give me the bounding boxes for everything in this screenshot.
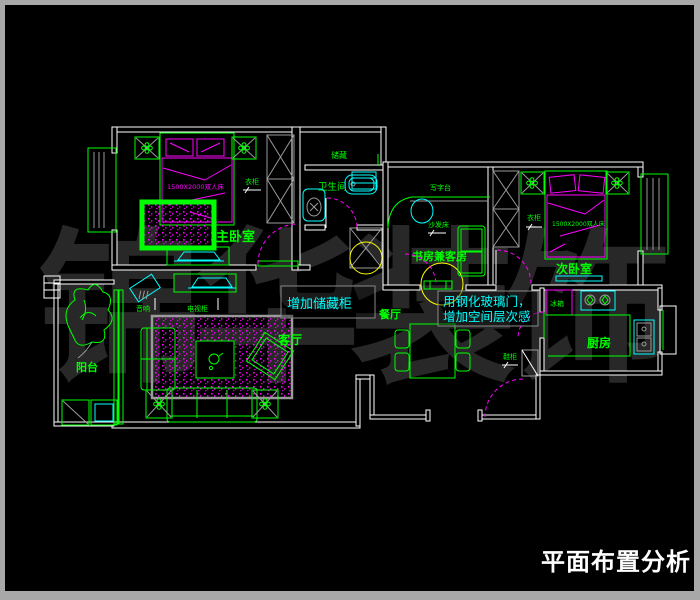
appliance-icon <box>91 400 117 425</box>
shoe-cabinet <box>522 350 538 376</box>
entry-door-arc <box>485 379 523 417</box>
toilet-icon <box>303 189 325 221</box>
frame-right <box>694 0 700 600</box>
tv-cabinet <box>174 274 236 292</box>
nightstand-second-left <box>521 172 544 194</box>
storage-cabinet-hatch <box>350 228 382 268</box>
bay-window-second <box>641 174 668 254</box>
coffee-table <box>196 341 234 378</box>
bay-window-master <box>88 148 116 232</box>
room-label-kitchen: 厨房 <box>587 335 611 350</box>
dimension-mark <box>526 224 542 230</box>
glass-door-note-box: 用钢化玻璃门， 增加空间层次感 <box>438 291 538 326</box>
storage-note-box: 增加储藏柜 <box>281 286 375 318</box>
frame-top <box>0 0 700 5</box>
label-fridge: 冰箱 <box>550 299 564 308</box>
label-tv-cabinet: 电视柜 <box>187 304 208 313</box>
room-label-study: 书房兼客房 <box>412 249 467 263</box>
speaker-icon <box>130 274 162 303</box>
dimension-mark <box>502 362 518 368</box>
washer-icon <box>62 400 89 425</box>
frame-left <box>0 0 5 600</box>
highlight-circle <box>350 242 382 274</box>
desk-chair-icon <box>411 199 433 223</box>
dimension-mark <box>243 187 261 193</box>
cad-canvas: 锦华装饰 <box>0 0 700 600</box>
stove-icon <box>581 291 615 310</box>
master-bed-size-label: 1500X2000双人床 <box>167 182 225 191</box>
service-balcony <box>660 306 676 354</box>
dining-table <box>395 324 470 378</box>
label-wardrobe-second: 衣柜 <box>527 213 541 222</box>
second-bed-size-label: 1500X2000双人床 <box>552 220 605 228</box>
label-sofa-bed: 沙发床 <box>428 220 449 229</box>
nightstand-second-right <box>606 172 629 194</box>
window-strip <box>556 276 602 281</box>
second-bedroom-door <box>496 250 531 284</box>
label-desk: 写字台 <box>430 183 451 192</box>
wardrobe-second <box>493 171 519 247</box>
second-bed: 1500X2000双人床 <box>545 171 607 259</box>
fridge: 冰箱 <box>546 290 572 315</box>
room-label-balcony: 阳台 <box>76 360 98 374</box>
room-label-second-bedroom: 次卧室 <box>556 261 592 276</box>
floor-plan-drawing: 1500X2000双人床 主卧 <box>0 0 700 600</box>
glass-door-note-line1: 用钢化玻璃门， <box>443 294 531 309</box>
balcony-sliding-door <box>114 290 123 424</box>
sink-icon <box>634 320 654 354</box>
room-label-dining: 餐厅 <box>378 307 401 321</box>
room-label-living: 客厅 <box>277 332 302 347</box>
bathroom-door <box>326 198 357 228</box>
drawing-title: 平面布置分析 <box>541 542 691 577</box>
nightstand-master-left <box>135 137 159 159</box>
glass-door-note-line2: 增加空间层次感 <box>443 309 531 324</box>
wardrobe-master <box>267 135 294 223</box>
nightstand-master-right <box>232 137 256 159</box>
plant-icon <box>66 284 112 358</box>
room-label-master-bedroom: 主卧室 <box>216 229 255 245</box>
room-label-storage: 储藏 <box>331 150 347 160</box>
master-rug <box>142 202 214 248</box>
storage-note-text: 增加储藏柜 <box>287 297 352 312</box>
dimension-mark <box>428 230 446 236</box>
label-shoe-cabinet: 鞋柜 <box>503 352 517 361</box>
frame-bottom <box>0 591 700 600</box>
label-wardrobe-master: 衣柜 <box>245 177 259 186</box>
label-audio: 音响 <box>136 304 150 313</box>
room-label-bathroom: 卫生间 <box>318 181 347 193</box>
